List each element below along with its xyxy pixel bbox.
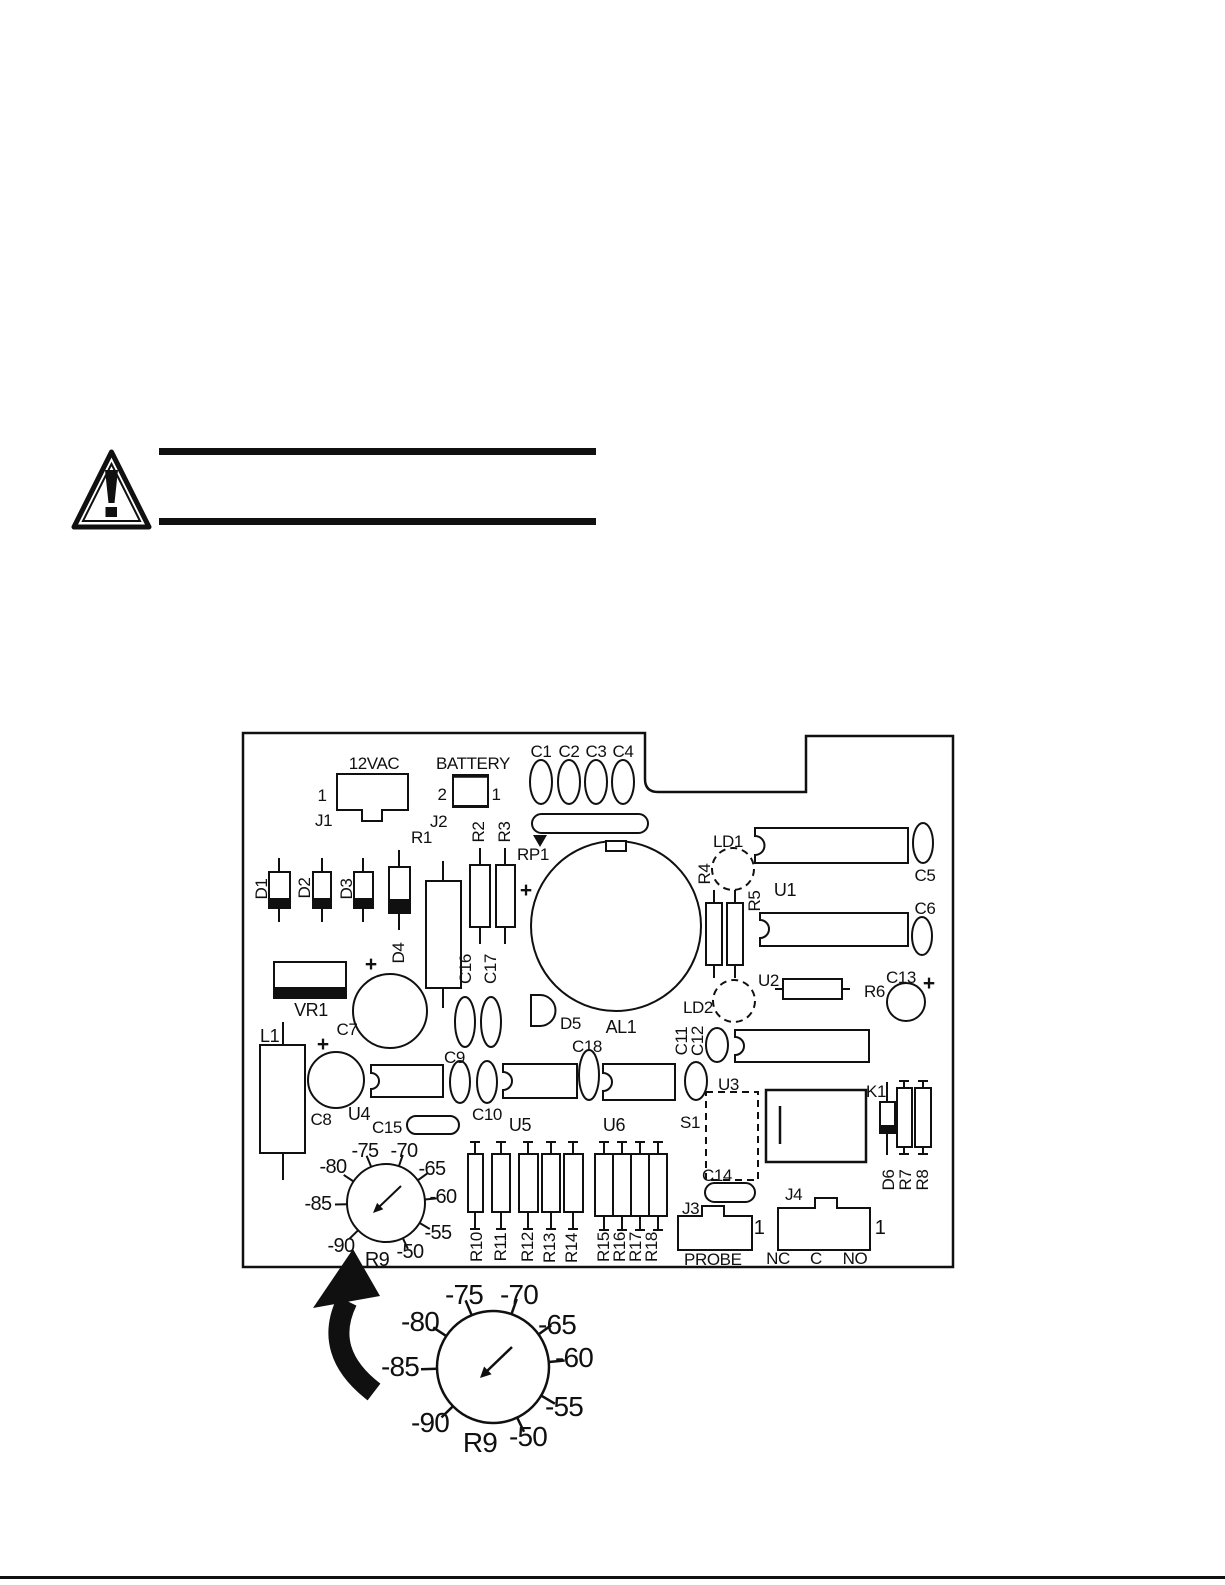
dial-tick-70: -70 <box>390 1140 418 1162</box>
label-u4: U4 <box>348 1104 371 1124</box>
led-ld2: LD2 <box>683 980 755 1022</box>
detail-tick-85: -85 <box>381 1351 419 1382</box>
trimpot-dial-r9: -75 -70 -80 -65 -85 -60 -90 -55 -50 R9 <box>304 1140 457 1271</box>
detail-tick-65: -65 <box>538 1309 576 1340</box>
connector-j1: 12VAC 1 J1 <box>315 754 408 830</box>
dial-tick-60: -60 <box>429 1186 457 1208</box>
label-c15: C15 <box>372 1118 402 1137</box>
capacitor-c14: C14 <box>702 1166 755 1202</box>
capacitor-c5: C5 <box>913 823 935 885</box>
label-r10: R10 <box>467 1232 486 1262</box>
detail-label-r9: R9 <box>463 1427 497 1458</box>
connector-j4: J4 1 NC C NO <box>766 1185 886 1268</box>
label-k1: K1 <box>866 1082 886 1101</box>
detail-tick-60: -60 <box>555 1342 593 1373</box>
label-r4: R4 <box>695 864 714 885</box>
label-d3: D3 <box>337 879 356 900</box>
capacitor-c6: C6 <box>912 899 935 955</box>
warning-rule-top <box>159 448 596 455</box>
label-j3-pin1: 1 <box>754 1217 765 1239</box>
inductor-l1: L1 <box>260 1022 305 1180</box>
ic-u2: U2 <box>758 971 850 999</box>
led-ld1: LD1 <box>712 832 754 890</box>
label-r8: R8 <box>913 1170 932 1191</box>
label-r6: R6 <box>864 982 885 1001</box>
diode-d4: D4 <box>389 850 410 963</box>
label-c1: C1 <box>531 742 552 761</box>
resistor-r3: R3 <box>495 822 515 944</box>
label-j4: J4 <box>785 1185 802 1204</box>
warning-triangle-icon <box>74 452 149 527</box>
capacitors-c1-c4: C1 C2 C3 C4 <box>530 742 634 804</box>
detail-tick-55: -55 <box>545 1391 583 1422</box>
label-j2: J2 <box>430 812 447 831</box>
label-u5: U5 <box>509 1115 532 1135</box>
alarm-al1: + AL1 <box>520 841 701 1037</box>
label-j1-pin1: 1 <box>317 786 326 805</box>
page-footer-rule <box>0 1576 1225 1579</box>
detail-tick-70: -70 <box>500 1279 538 1310</box>
diode-d1: D1 <box>252 858 290 922</box>
label-l1: L1 <box>260 1026 280 1046</box>
detail-tick-90: -90 <box>411 1407 449 1438</box>
resistors-r10-r14: R10 R11 R12 R13 R14 <box>467 1142 583 1263</box>
label-r1: R1 <box>411 828 432 847</box>
label-u1: U1 <box>774 880 797 900</box>
dial-detail-r9: -75 -70 -80 -65 -85 -60 -90 -55 -50 R9 <box>381 1279 593 1458</box>
label-12vac: 12VAC <box>349 754 400 773</box>
label-no: NO <box>843 1249 868 1268</box>
label-al1: AL1 <box>606 1017 637 1037</box>
c13-plus-mark: + <box>923 972 935 995</box>
label-c7: C7 <box>337 1020 358 1039</box>
label-s1: S1 <box>680 1113 700 1132</box>
potentiometer-rp1: RP1 <box>517 814 648 864</box>
label-r11: R11 <box>491 1233 510 1262</box>
label-r2: R2 <box>469 822 488 843</box>
dial-tick-75: -75 <box>351 1140 379 1162</box>
connector-j2: BATTERY 2 1 J2 <box>430 754 510 831</box>
label-r3: R3 <box>495 822 514 843</box>
label-c2: C2 <box>559 742 580 761</box>
detail-tick-50: -50 <box>509 1421 547 1452</box>
dial-tick-50: -50 <box>396 1241 424 1263</box>
document-page: 12VAC 1 J1 BATTERY 2 1 J2 C1 C2 C3 C4 <box>0 0 1225 1585</box>
label-d5: D5 <box>560 1014 581 1033</box>
label-d2: D2 <box>295 878 314 899</box>
label-c6: C6 <box>915 899 936 918</box>
pcb-diagram: 12VAC 1 J1 BATTERY 2 1 J2 C1 C2 C3 C4 <box>243 733 953 1271</box>
c7-plus-mark: + <box>365 953 377 976</box>
label-ld1: LD1 <box>713 832 743 851</box>
detail-tick-75: -75 <box>445 1279 483 1310</box>
capacitors-c9-c10: C9 C10 <box>444 1048 502 1124</box>
label-rp1: RP1 <box>517 845 549 864</box>
label-vr1: VR1 <box>294 1000 328 1020</box>
diode-d3: D3 <box>337 858 373 922</box>
label-j2-pin1: 1 <box>491 785 500 804</box>
diode-d2: D2 <box>295 858 331 922</box>
label-r13: R13 <box>540 1233 559 1263</box>
resistor-r8: R8 <box>913 1081 932 1190</box>
label-c16: C16 <box>456 954 475 984</box>
label-u2: U2 <box>758 971 779 990</box>
label-r14: R14 <box>562 1233 581 1263</box>
connector-j3: J3 1 PROBE <box>678 1199 765 1269</box>
capacitors-c16-c17: C16 C17 <box>455 954 501 1047</box>
resistor-r1: R1 <box>411 828 461 1008</box>
dial-tick-65: -65 <box>418 1158 446 1180</box>
dial-tick-80: -80 <box>319 1156 347 1178</box>
label-r12: R12 <box>518 1232 537 1262</box>
warning-rule-bottom <box>159 518 596 525</box>
label-probe: PROBE <box>684 1250 742 1269</box>
ic-u5: U5 <box>503 1064 577 1135</box>
dial-detail-callout: -75 -70 -80 -65 -85 -60 -90 -55 -50 R9 <box>313 1249 593 1458</box>
ic-u1: U1 <box>755 828 908 946</box>
dial-tick-55: -55 <box>424 1222 452 1244</box>
label-c8: C8 <box>311 1110 332 1129</box>
label-d1: D1 <box>252 879 271 900</box>
label-c10: C10 <box>472 1105 502 1124</box>
relay-k1: K1 <box>766 1082 886 1162</box>
label-j1: J1 <box>315 811 332 830</box>
capacitor-c13: R6 C13 + <box>864 968 935 1021</box>
label-c4: C4 <box>613 742 634 761</box>
ic-u6: U6 <box>603 1064 675 1135</box>
al1-plus-mark: + <box>520 879 532 902</box>
sensor-u3: U3 <box>706 1075 758 1180</box>
capacitor-c15: C15 <box>372 1116 459 1137</box>
label-ld2: LD2 <box>683 998 713 1017</box>
resistors-r4-r5-bodies <box>706 890 743 978</box>
label-c: C <box>810 1249 822 1268</box>
label-battery: BATTERY <box>436 754 510 773</box>
label-u6: U6 <box>603 1115 626 1135</box>
label-j4-pin1: 1 <box>875 1217 886 1239</box>
label-c17: C17 <box>481 954 500 984</box>
ic-dip-right <box>735 1030 869 1062</box>
capacitor-c7: + C7 <box>337 953 427 1048</box>
label-c12: C12 <box>688 1026 707 1056</box>
label-nc: NC <box>766 1249 790 1268</box>
regulator-vr1: VR1 <box>274 962 346 1020</box>
detail-tick-80: -80 <box>401 1306 439 1337</box>
label-c3: C3 <box>586 742 607 761</box>
label-j2-pin2: 2 <box>437 785 446 804</box>
warning-callout <box>74 448 596 527</box>
label-d4: D4 <box>389 943 408 964</box>
resistor-r2: R2 <box>469 822 490 944</box>
label-c5: C5 <box>915 866 936 885</box>
resistors-r15-r18: R15 R16 R17 R18 <box>594 1142 667 1262</box>
dial-tick-85: -85 <box>304 1193 332 1215</box>
label-r18: R18 <box>642 1232 661 1262</box>
label-r5: R5 <box>745 891 764 912</box>
label-r9: R9 <box>365 1249 390 1271</box>
